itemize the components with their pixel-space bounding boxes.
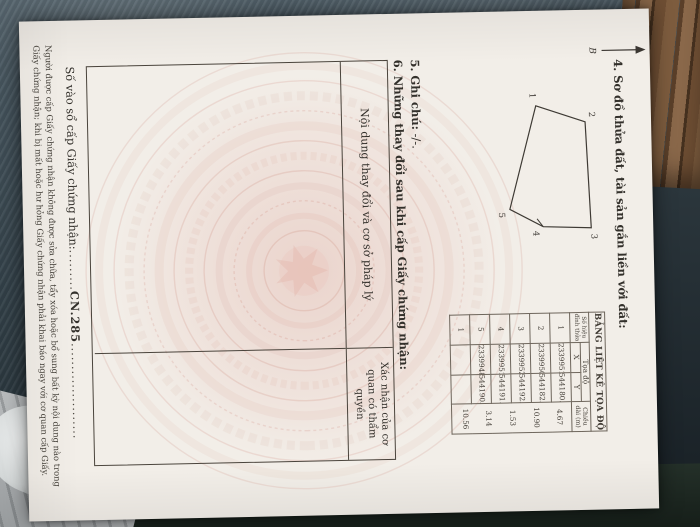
col-header-x: X <box>571 342 581 372</box>
coord-y: 544191.83 <box>491 373 512 403</box>
registry-line: Số vào sổ cấp Giấy chứng nhận:.........C… <box>63 66 85 439</box>
coord-y: 544180.83 <box>551 372 572 402</box>
vertex-id: 3 <box>510 314 531 344</box>
north-arrow-icon: B <box>585 40 647 59</box>
col-header-vertex: Số hiệu đỉnh thửa <box>570 312 589 342</box>
parcel-boundary <box>508 105 592 230</box>
coord-y <box>451 374 472 404</box>
vertex-label: 2 <box>586 112 596 118</box>
vertex-id: 2 <box>530 313 551 343</box>
photo-scene: B 4. Sơ đồ thửa đất, tài sản gắn liền vớ… <box>0 0 700 527</box>
vertex-id: 5 <box>470 314 491 344</box>
vertex-label: 1 <box>526 93 536 99</box>
coord-x: 2339948.23 <box>471 344 492 374</box>
edge-length: 1.53 <box>508 404 517 433</box>
edge-length: 3.14 <box>484 404 493 433</box>
coord-y: 544182.19 <box>531 373 552 403</box>
registry-label: Số vào sổ cấp Giấy chứng nhận: <box>63 66 80 249</box>
coord-x: 2339951.16 <box>491 344 512 374</box>
changes-table: Nội dung thay đổi và cơ sở pháp lý Xác n… <box>86 60 396 466</box>
vertex-id: 1 <box>450 315 471 345</box>
north-label: B <box>586 46 596 54</box>
vertex-id: 1 <box>550 313 571 343</box>
section5-value: -/-. <box>409 133 423 149</box>
col-header-coord: Tọa độ <box>580 342 591 402</box>
registry-number: CN.285 <box>67 291 82 343</box>
edge-length: 4.67 <box>555 403 564 432</box>
edge-length: 10.90 <box>531 403 540 432</box>
authority-column-cell <box>95 349 348 465</box>
authority-column-header: Xác nhận của cơ quan có thẩm quyền <box>347 348 395 460</box>
vertex-label: 5 <box>496 212 506 218</box>
vertex-id: 4 <box>490 314 511 344</box>
coordinate-table: BẢNG LIỆT KÊ TỌA ĐỘ Số hiệu đỉnh thửa Tọ… <box>450 311 608 434</box>
edge-lengths: 4.67 10.90 1.53 3.14 10.56 <box>453 402 572 433</box>
coord-x: 2339952.58 <box>511 343 532 373</box>
coordinate-table-title: BẢNG LIỆT KÊ TỌA ĐỘ <box>589 312 607 431</box>
coord-y: 544192.40 <box>511 373 532 403</box>
changes-table-body <box>89 62 348 465</box>
edge-length: 10.56 <box>461 405 470 434</box>
dotted-leader: ..................... <box>69 343 84 440</box>
vertex-label: 3 <box>588 234 598 240</box>
footnote: Người được cấp Giấy chứng nhận không đượ… <box>30 45 64 517</box>
content-column-cell <box>89 62 346 354</box>
col-header-y: Y <box>571 372 581 402</box>
coord-x: 2339950.40 <box>531 343 552 373</box>
paper-document: B 4. Sơ đồ thửa đất, tài sản gắn liền vớ… <box>19 8 659 521</box>
coord-x <box>451 345 472 375</box>
section4-title: 4. Sơ đồ thửa đất, tài sản gắn liền với … <box>611 59 631 329</box>
vertex-label: 4 <box>530 231 540 237</box>
content-column-header: Nội dung thay đổi và cơ sở pháp lý <box>341 61 393 349</box>
section5-note: 5. Ghi chú: -/-. <box>408 59 424 149</box>
dotted-leader: ......... <box>67 249 81 291</box>
col-header-length: Chiều dài (m) <box>572 402 591 432</box>
section5-label: 5. Ghi chú: <box>408 59 423 130</box>
changes-table-header: Nội dung thay đổi và cơ sở pháp lý Xác n… <box>340 61 395 460</box>
coord-x: 2339951.91 <box>551 342 572 372</box>
parcel-diagram: 1 2 3 4 5 <box>490 67 606 254</box>
coord-y: 544190.70 <box>471 374 492 404</box>
